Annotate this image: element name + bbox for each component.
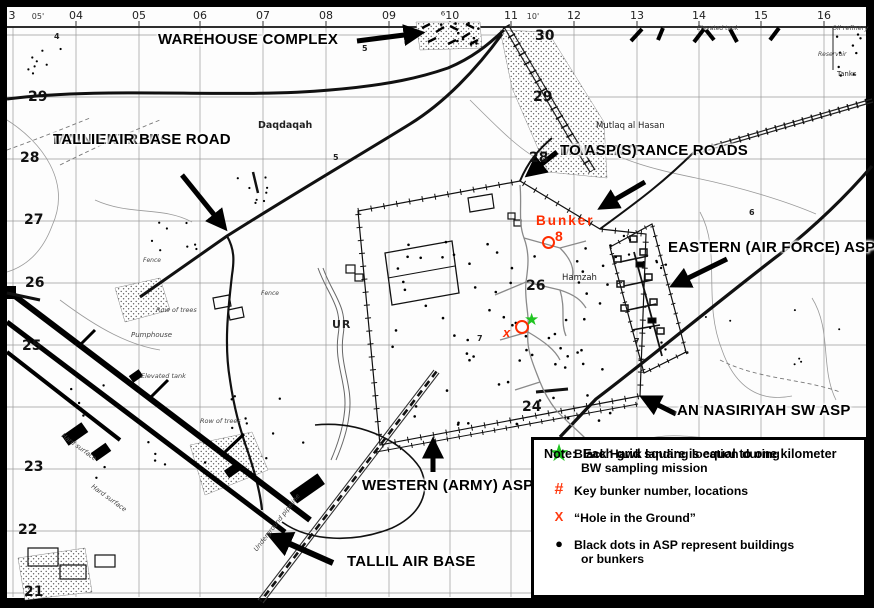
legend-note-text: Each grid square is equal to one kilomet… (583, 447, 836, 461)
legend-item-text: Key bunker number, locations (574, 484, 748, 498)
legend-box: Note:Each grid square is equal to one ki… (531, 437, 867, 598)
legend-item-text: Black dots in ASP represent buildings or… (574, 538, 794, 566)
legend-line: BW sampling mission (581, 461, 780, 475)
legend-line: Key bunker number, locations (574, 484, 748, 498)
legend-line: or bunkers (581, 552, 794, 566)
legend-note-label: Note: (544, 447, 576, 461)
legend-note: Note:Each grid square is equal to one ki… (544, 447, 837, 461)
legend-line: “Hole in the Ground” (574, 511, 696, 525)
legend-item-hole-in-ground: X “Hole in the Ground” (544, 511, 858, 525)
red-x-icon: X (544, 511, 574, 523)
legend-line: Black dots in ASP represent buildings (574, 538, 794, 552)
topographic-map-tallil-air-base: 3 05' 04 05 06 07 08 09 ⁶10 11 10' 12 13… (0, 0, 874, 608)
legend-item-key-bunker: # Key bunker number, locations (544, 484, 858, 498)
black-dot-icon: ● (544, 538, 574, 550)
legend-item-text: “Hole in the Ground” (574, 511, 696, 525)
red-hash-icon: # (544, 484, 574, 496)
legend-item-black-dots: ● Black dots in ASP represent buildings … (544, 538, 858, 566)
